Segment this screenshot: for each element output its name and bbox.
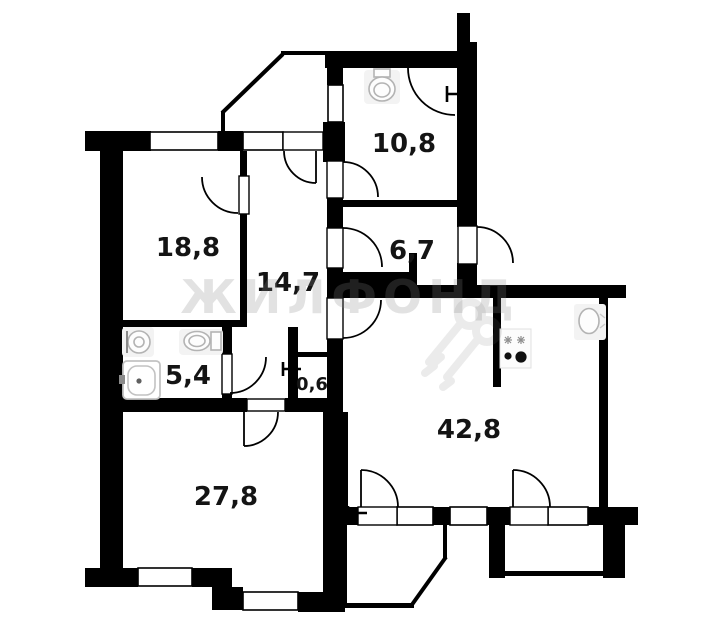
window-27-8-left <box>138 568 192 586</box>
toilet-icon <box>364 69 400 104</box>
floor-plan-page: 18,8 14,7 10,8 6,7 5,4 0,6 27,8 42,8 ЖИЛ… <box>0 0 702 644</box>
room-label-27-8: 27,8 <box>194 482 258 512</box>
room-label-6-7: 6,7 <box>389 236 435 266</box>
room-label-42-8: 42,8 <box>437 415 501 445</box>
watermark-text: ЖИЛФОНД <box>180 270 519 324</box>
window-hall-balcony <box>243 132 283 150</box>
room-label-5-4: 5,4 <box>165 361 211 391</box>
window-room-18-8 <box>150 132 218 150</box>
room-label-10-8: 10,8 <box>372 129 436 159</box>
kitchen-sink-icon <box>574 304 606 340</box>
stove-icon <box>500 329 531 368</box>
sink-icon <box>122 327 154 357</box>
toilet-icon-2 <box>179 329 223 355</box>
bathtub-icon <box>119 361 160 399</box>
window-27-8-right <box>243 592 298 610</box>
balcony-bottom-right <box>505 571 603 576</box>
room-label-18-8: 18,8 <box>156 233 220 263</box>
window-wc-balcony <box>328 85 343 122</box>
window-42-8-mid <box>450 507 487 525</box>
room-label-0-6: 0,6 <box>296 374 328 395</box>
floor-plan: 18,8 14,7 10,8 6,7 5,4 0,6 27,8 42,8 ЖИЛ… <box>0 0 702 644</box>
window-42-8-right <box>548 507 588 525</box>
window-42-8-left <box>397 507 433 525</box>
